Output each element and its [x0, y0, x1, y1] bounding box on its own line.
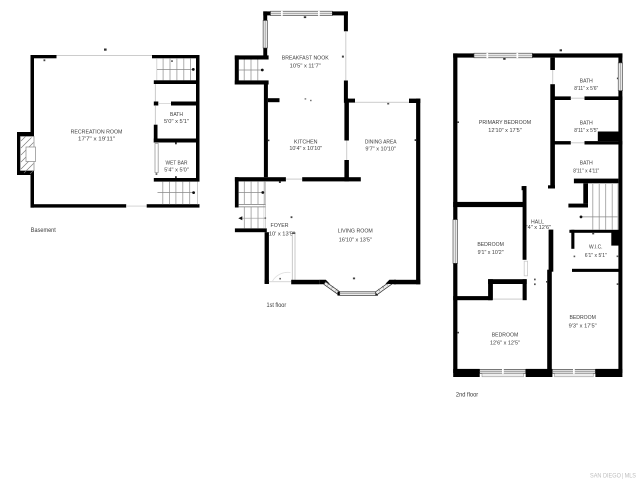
svg-text:LIVING ROOM: LIVING ROOM: [338, 228, 373, 234]
svg-text:BEDROOM: BEDROOM: [492, 332, 519, 338]
svg-text:BATH: BATH: [580, 120, 593, 126]
svg-text:1st floor: 1st floor: [267, 302, 287, 309]
svg-text:10'4" x 10'10": 10'4" x 10'10": [289, 146, 322, 152]
svg-text:BATH: BATH: [580, 78, 593, 84]
svg-text:BEDROOM: BEDROOM: [569, 315, 596, 321]
svg-text:SAN DIEGO | MLS: SAN DIEGO | MLS: [590, 474, 636, 480]
svg-text:KITCHEN: KITCHEN: [294, 140, 318, 146]
svg-text:8'11" x 5'5": 8'11" x 5'5": [574, 128, 598, 134]
svg-text:6'1" x 5'1": 6'1" x 5'1": [585, 253, 607, 259]
svg-text:BATH: BATH: [580, 161, 593, 167]
svg-text:8'11" x 4'11": 8'11" x 4'11": [573, 169, 599, 175]
svg-text:12'10" x 17'5": 12'10" x 17'5": [488, 128, 521, 134]
svg-text:8'11" x 5'6": 8'11" x 5'6": [574, 86, 598, 92]
svg-text:10' x 13'5": 10' x 13'5": [269, 231, 295, 237]
svg-text:BEDROOM: BEDROOM: [477, 242, 504, 248]
svg-text:DINING AREA: DINING AREA: [365, 140, 397, 146]
svg-text:PRIMARY BEDROOM: PRIMARY BEDROOM: [479, 120, 531, 126]
svg-text:12'6" x 12'5": 12'6" x 12'5": [490, 340, 520, 346]
svg-text:10'5" x 11'7": 10'5" x 11'7": [290, 63, 321, 69]
svg-text:WET BAR: WET BAR: [166, 161, 188, 167]
svg-text:FOYER: FOYER: [271, 223, 289, 229]
svg-text:16'10" x 13'5": 16'10" x 13'5": [339, 238, 372, 244]
svg-text:BREAKFAST NOOK: BREAKFAST NOOK: [282, 56, 329, 62]
svg-text:5'4" x 5'0": 5'4" x 5'0": [164, 168, 189, 174]
svg-text:Basement: Basement: [31, 227, 56, 234]
svg-text:9'1" x 10'2": 9'1" x 10'2": [478, 250, 504, 256]
svg-text:RECREATION ROOM: RECREATION ROOM: [71, 130, 123, 136]
svg-text:BATH: BATH: [170, 112, 183, 118]
svg-text:9'7" x 10'10": 9'7" x 10'10": [365, 147, 396, 153]
svg-text:17'7" x 19'11": 17'7" x 19'11": [78, 136, 115, 142]
svg-text:2nd floor: 2nd floor: [456, 391, 479, 398]
svg-text:W.I.C.: W.I.C.: [589, 244, 603, 250]
svg-text:9'3" x 17'5": 9'3" x 17'5": [569, 324, 597, 330]
svg-text:'4" x 12'6": '4" x 12'6": [527, 225, 552, 231]
svg-text:5'0" x 5'1": 5'0" x 5'1": [164, 119, 189, 125]
